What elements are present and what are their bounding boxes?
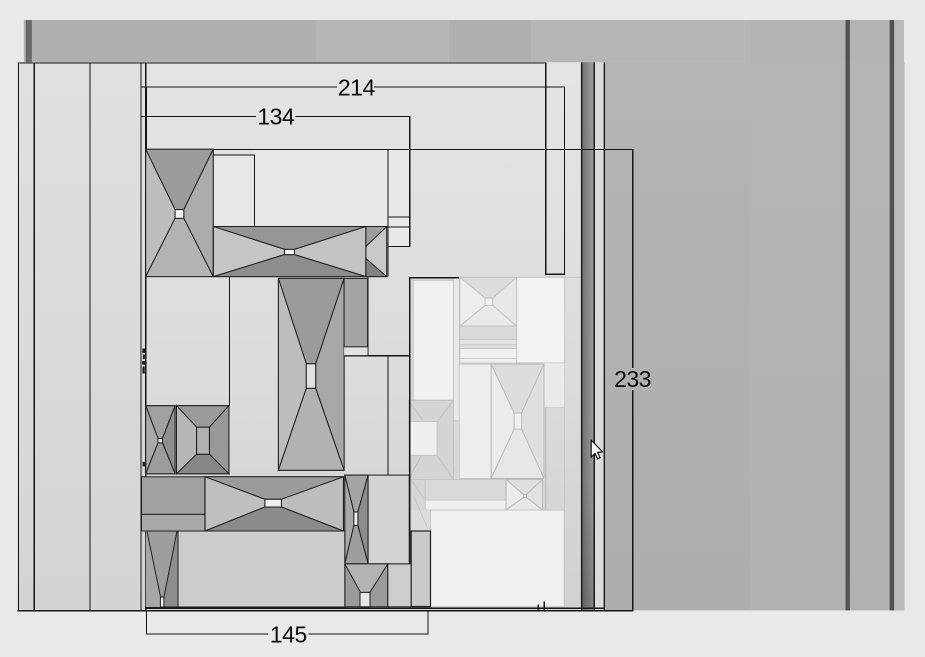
svg-text:233: 233 <box>614 366 651 392</box>
svg-text:134: 134 <box>257 103 295 129</box>
svg-text:145: 145 <box>270 622 307 648</box>
svg-text:214: 214 <box>338 74 376 100</box>
